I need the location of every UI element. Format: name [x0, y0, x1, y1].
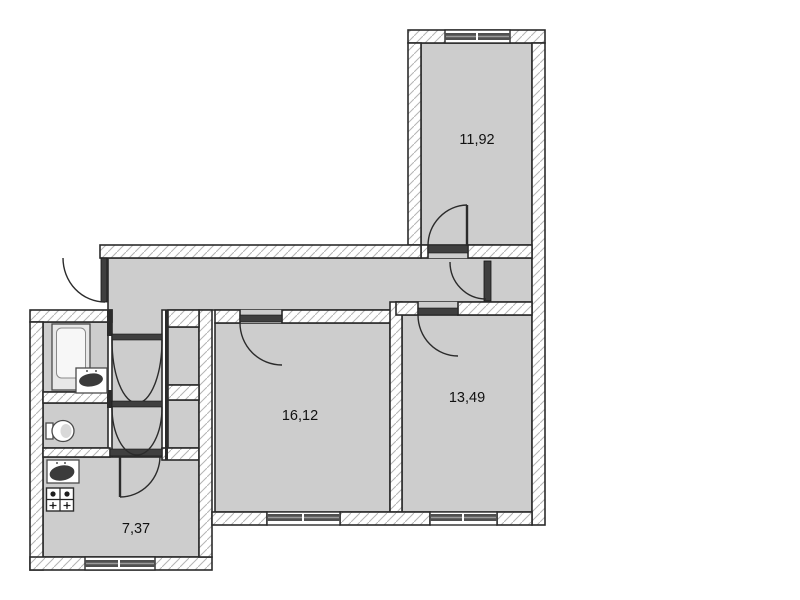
wall-kitchen-right [199, 310, 212, 557]
area-label-room-right: 13,49 [449, 390, 485, 406]
wall-room-center-bottom-left [212, 512, 267, 525]
wall-rooms-divider [390, 302, 402, 512]
kitchen-sink-icon [47, 460, 79, 483]
floor-plan: 11,92 16,12 13,49 7,37 [0, 0, 800, 600]
room-right-floor [402, 315, 532, 512]
window-room-center [267, 512, 340, 525]
area-label-kitchen: 7,37 [122, 521, 150, 537]
area-label-room-center: 16,12 [282, 408, 318, 424]
wall-kitchen-top-left [43, 448, 110, 457]
stove-icon [47, 488, 74, 511]
window-kitchen [85, 557, 155, 570]
wall-room-center-top-left [215, 310, 240, 323]
wall-outer-left [30, 322, 43, 570]
entrance-door-arc [63, 258, 105, 302]
wall-room-right-top-left [396, 302, 418, 315]
window-room-top [445, 30, 510, 43]
entrance-door [63, 258, 107, 302]
area-label-room-top: 11,92 [459, 132, 494, 148]
floors [43, 43, 532, 557]
wall-leftblock-top [30, 310, 112, 322]
wall-closet-top [168, 310, 199, 327]
window-room-right [430, 512, 497, 525]
toilet-icon [46, 421, 74, 442]
wall-hall-bath-lower [107, 390, 112, 408]
wall-room-right-bottom [497, 512, 532, 525]
wall-rooms-bottom-middle [340, 512, 430, 525]
wall-hall-bath-upper [107, 310, 112, 336]
floor-plan-page: 11,92 16,12 13,49 7,37 [0, 0, 800, 600]
closet-lower-floor [168, 400, 199, 448]
closet-upper-floor [168, 327, 199, 385]
wall-under-room-top-left [421, 245, 428, 258]
wall-under-room-top-right [468, 245, 532, 258]
wall-closet-left-edge [165, 310, 168, 460]
entrance-door-leaf [101, 258, 107, 302]
wall-outer-right [532, 43, 545, 525]
wall-left-room-top [408, 43, 421, 245]
wall-closet-divider [168, 385, 199, 400]
wash-basin-icon [76, 368, 107, 393]
wall-corridor-top [100, 245, 421, 258]
wall-room-right-top-right [458, 302, 532, 315]
wall-room-center-top-right [282, 310, 396, 323]
